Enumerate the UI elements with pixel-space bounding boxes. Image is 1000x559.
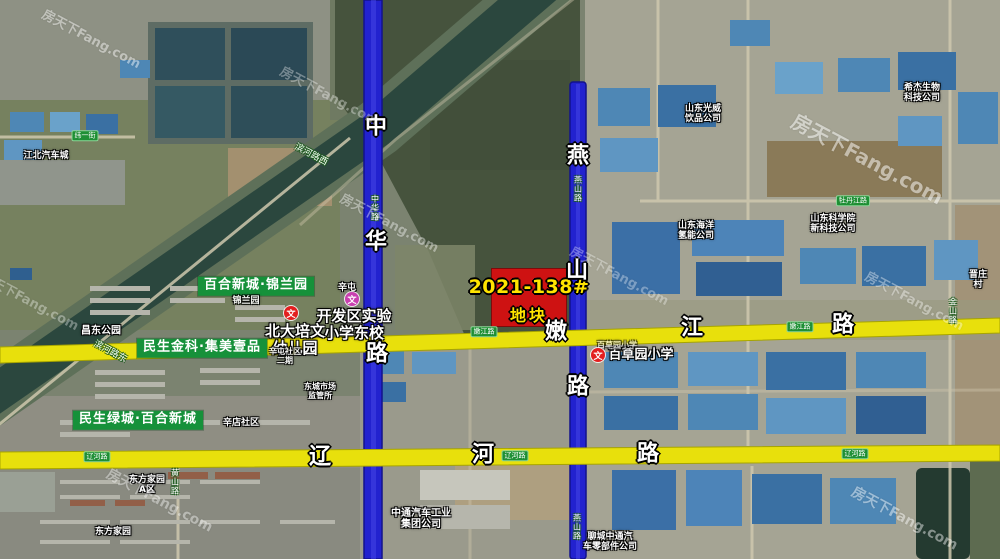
poi-changdong-park: 昌东公园 <box>81 325 121 336</box>
satellite-map-image: 2021-138# 地块 百合新城·锦兰园民生金科·集美壹品民生绿城·百合新城中… <box>0 0 1000 559</box>
road-tinylabel-zhonghua: 中华路 <box>370 195 379 222</box>
road-liaohe-char: 路 <box>637 443 659 468</box>
watermark: 房天下Fang.com <box>862 266 968 334</box>
road-liaohe-char: 河 <box>472 444 494 469</box>
road-nenjiang-char: 路 <box>832 314 854 339</box>
map-annotations-layer: 百合新城·锦兰园民生金科·集美壹品民生绿城·百合新城中华路燕山路嫩江路辽河路辽河… <box>0 0 1000 559</box>
watermark: 房天下Fang.com <box>787 106 949 211</box>
road-badge-liaohe: 辽河路 <box>84 451 111 462</box>
school-icon: 文 <box>591 348 605 362</box>
watermark: 房天下Fang.com <box>103 463 217 536</box>
road-zhonghua-char: 华 <box>365 231 387 256</box>
watermark: 房天下Fang.com <box>0 266 83 334</box>
road-tinylabel-yanshan: 燕山路 <box>572 514 581 541</box>
poi-jinlanyuan: 锦兰园 <box>232 296 259 306</box>
poi-xintun: 辛屯 <box>338 283 356 293</box>
road-zhonghua-char: 中 <box>365 116 387 141</box>
road-tinylabel-binhedong: 滨河路东 <box>92 339 129 365</box>
poi-dongcheng-market-office: 东城市场 监管所 <box>304 383 336 401</box>
watermark: 房天下Fang.com <box>277 61 383 129</box>
poi-jinzhuang-village: 晋庄村 <box>967 270 989 290</box>
estate-label-jinlanyuan: 百合新城·锦兰园 <box>198 277 314 296</box>
school-icon: 文 <box>345 292 359 306</box>
poi-dongfang-jiayuan: 东方家园 <box>95 527 131 537</box>
watermark: 房天下Fang.com <box>337 188 443 256</box>
poi-xindian-shequ: 辛店社区 <box>223 418 259 428</box>
poi-dongfang-jiayuan-a: 东方家园 A区 <box>129 475 165 495</box>
poi-liaocheng-auto-parts: 聊城中通汽 车零部件公司 <box>583 532 637 552</box>
road-badge-nenjiang: 嫩江路 <box>471 326 498 337</box>
poi-baicaoyuan-school-faint: 百草园小学 <box>597 342 637 351</box>
watermark: 房天下Fang.com <box>567 241 673 309</box>
estate-label-baihexincheng: 民生绿城·百合新城 <box>73 411 203 430</box>
road-badge-nenjiang: 嫩江路 <box>787 321 814 332</box>
poi-kexueyuan-tech: 山东科学院 新科技公司 <box>810 214 855 234</box>
poi-baicaoyuan-school: 百草园小学 <box>608 349 673 364</box>
road-nenjiang-char: 江 <box>681 317 703 342</box>
road-badge-weiyijie: 纬一街 <box>72 130 99 141</box>
poi-jiangbei-auto-city: 江北汽车城 <box>23 151 68 161</box>
road-badge-liaohe: 辽河路 <box>502 450 529 461</box>
road-tinylabel-yanshan: 燕山路 <box>573 176 582 203</box>
road-badge-mudanjiang: 牡丹江路 <box>836 195 870 206</box>
estate-label-jimeiyipin: 民生金科·集美壹品 <box>137 339 267 358</box>
poi-beida-peiwen-kindergarten: 北大培文 幼儿园 <box>265 323 325 357</box>
road-yanshan-char: 山 <box>566 260 588 285</box>
poi-kaifaqu-shiyan-school: 开发区实验 小学东校 <box>316 308 391 342</box>
poi-haiyang-hydrogen: 山东海洋 氢能公司 <box>678 221 714 241</box>
road-nenjiang-char: 嫩 <box>545 321 567 346</box>
watermark: 房天下Fang.com <box>39 4 145 72</box>
road-tinylabel-binhexi: 滨河路西 <box>293 142 330 168</box>
road-liaohe-char: 辽 <box>309 446 331 471</box>
road-tinylabel-jinshan: 金山路 <box>948 298 957 325</box>
road-badge-liaohe: 辽河路 <box>842 448 869 459</box>
road-zhonghua-char: 路 <box>366 343 388 368</box>
road-tinylabel-huangshan: 黄山路 <box>170 469 179 496</box>
poi-xijie-biotech: 希杰生物 科技公司 <box>904 83 940 103</box>
poi-xintun-shequ: 辛屯社区 二期 <box>269 348 301 366</box>
road-yanshan-char: 燕 <box>567 145 589 170</box>
school-icon: 文 <box>284 306 298 320</box>
poi-zhongtong-auto-group: 中通汽车工业 集团公司 <box>391 508 451 530</box>
watermark: 房天下Fang.com <box>848 481 962 554</box>
poi-guangwei-company: 山东光威 饮品公司 <box>685 104 721 124</box>
road-yanshan-char: 路 <box>567 376 589 401</box>
